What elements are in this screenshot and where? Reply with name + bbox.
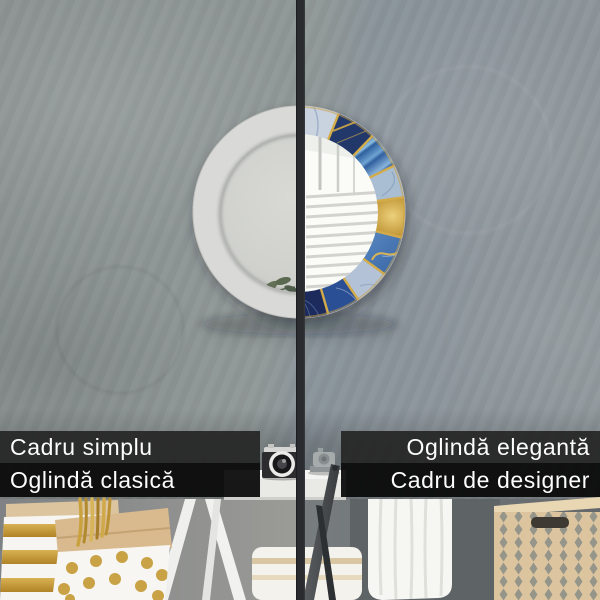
left-label-line1: Cadru simplu xyxy=(10,434,153,461)
left-label-bar-1: Cadru simplu xyxy=(0,431,260,463)
left-label-bar-2: Oglindă clasică xyxy=(0,463,260,497)
polka-dot-gift-bag xyxy=(52,508,172,600)
ladder-hinge xyxy=(332,465,338,471)
scene-artwork xyxy=(0,0,600,600)
product-comparison-photo: Cadru simplu Oglindă clasică Oglindă ele… xyxy=(0,0,600,600)
right-label-line1: Oglindă elegantă xyxy=(406,434,590,461)
left-label-line2: Oglindă clasică xyxy=(10,467,175,494)
right-label-line2: Cadru de designer xyxy=(391,467,590,494)
hanging-towel xyxy=(368,499,452,600)
split-divider xyxy=(296,0,305,600)
right-label-bar-2: Cadru de designer xyxy=(341,463,600,497)
storage-basket xyxy=(494,497,600,600)
right-label-bar-1: Oglindă elegantă xyxy=(341,431,600,463)
round-mirror xyxy=(193,92,418,336)
basket-handle xyxy=(531,517,569,528)
